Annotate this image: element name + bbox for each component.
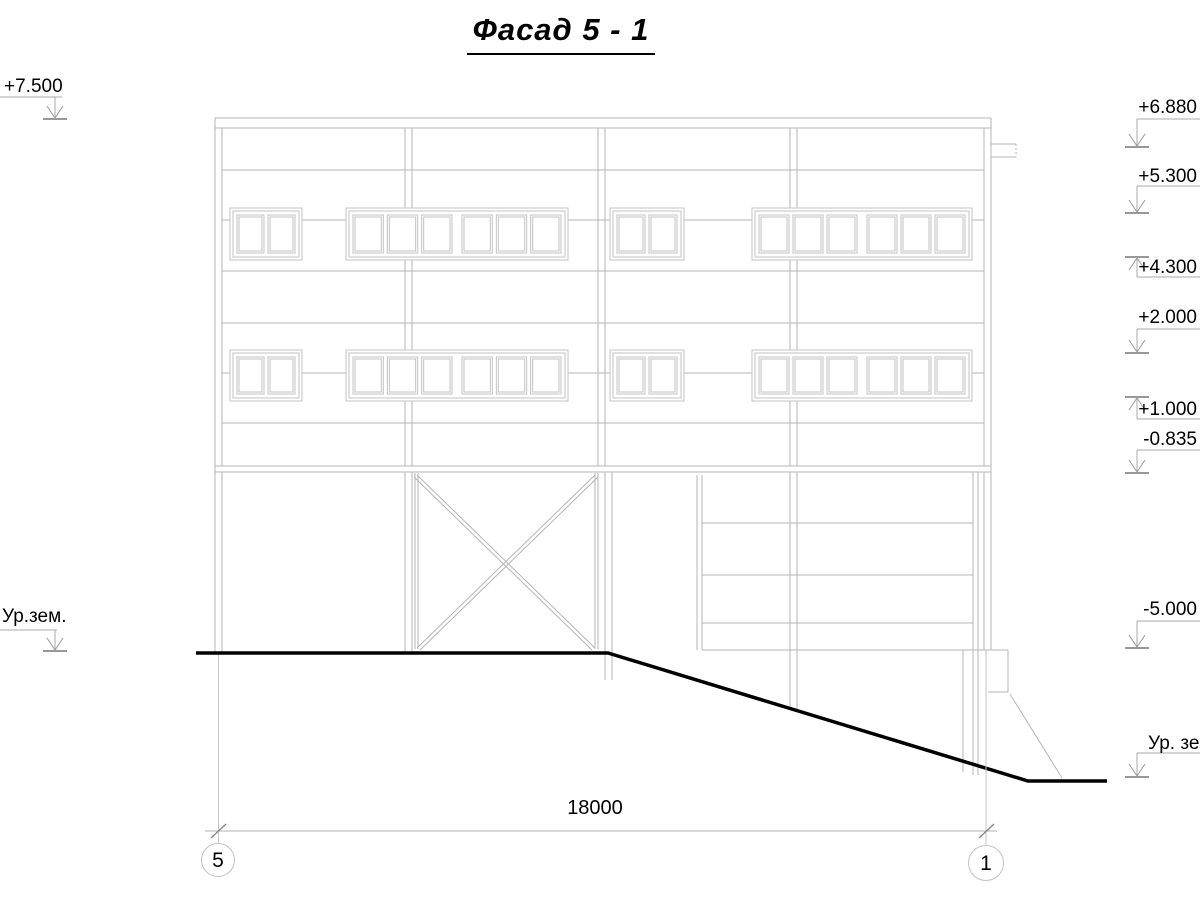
dimension-label: 18000 (495, 797, 695, 820)
facade-columns (405, 128, 797, 466)
level-label-left-1: Ур.зем. (2, 606, 66, 627)
level-label-right-4: +1.000 (1078, 399, 1197, 420)
drawing-sheet: Фасад 5 - 1 +7.500 Ур.зем. +6.880 +5.300… (0, 0, 1200, 900)
level-label-right-6: -5.000 (1078, 599, 1197, 620)
level-label-right-1: +5.300 (1078, 166, 1197, 187)
roof-pipe (991, 144, 1016, 157)
level-mark-icons (0, 97, 1200, 777)
axis-bubble-label-5: 5 (200, 849, 236, 873)
ground-line (196, 653, 1107, 781)
level-label-left-0: +7.500 (4, 76, 63, 97)
level-label-right-3: +2.000 (1078, 307, 1197, 328)
level-label-right-7: Ур. зе (1148, 733, 1199, 754)
level-label-right-5: -0.835 (1078, 429, 1197, 450)
stair-lines (702, 523, 1008, 650)
axis-bubble-label-1: 1 (968, 852, 1004, 876)
page-title: Фасад 5 - 1 (0, 12, 1122, 55)
cross-brace (414, 473, 598, 650)
facade-walls (215, 118, 991, 472)
drawing-title: Фасад 5 - 1 (467, 12, 656, 55)
level-label-right-0: +6.880 (1078, 97, 1197, 118)
dimension-and-axes (202, 650, 1004, 881)
level-label-right-2: +4.300 (1078, 257, 1197, 278)
windows (230, 208, 972, 401)
facade-elevation-drawing (0, 0, 1200, 900)
